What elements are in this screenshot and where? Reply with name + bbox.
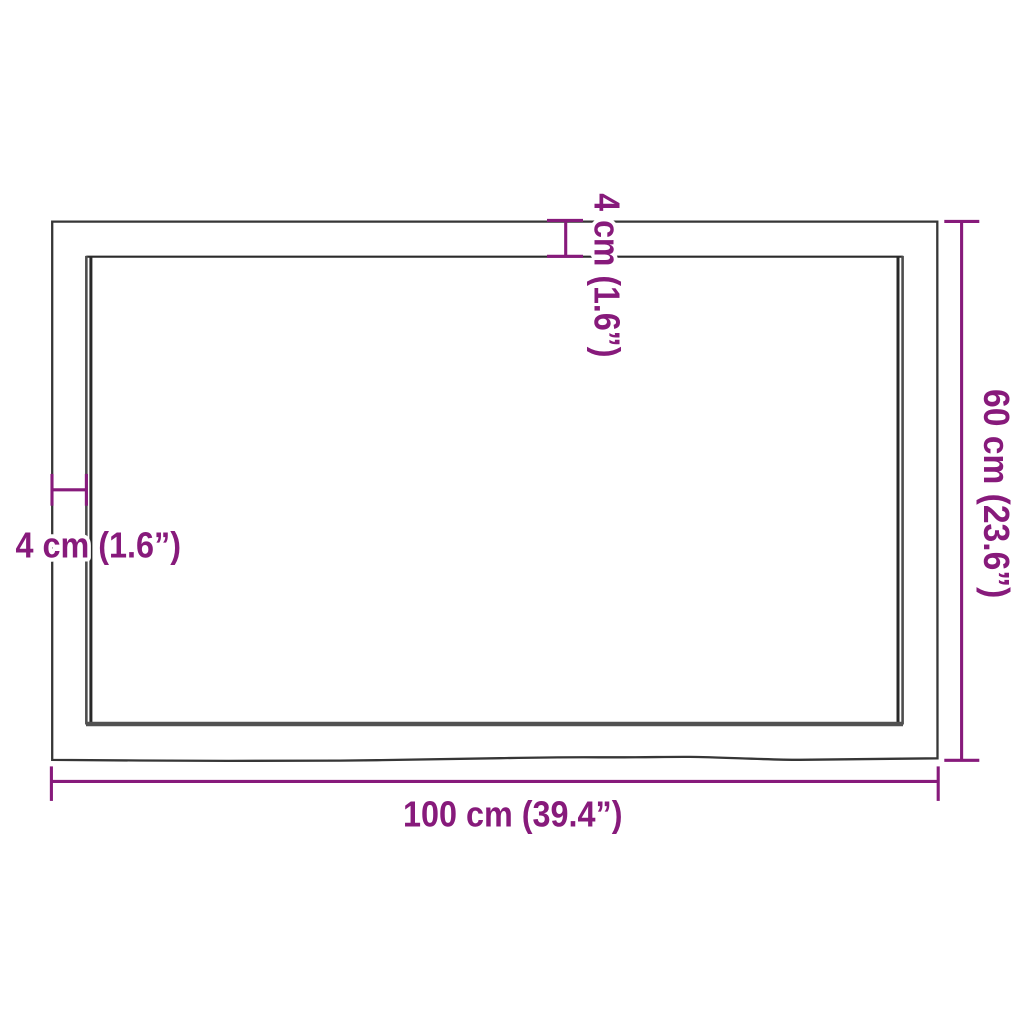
- svg-text:60 cm (23.6”): 60 cm (23.6”): [976, 389, 1017, 598]
- svg-text:100 cm (39.4”): 100 cm (39.4”): [403, 793, 623, 834]
- svg-text:4 cm (1.6”): 4 cm (1.6”): [586, 193, 627, 357]
- svg-text:4 cm (1.6”): 4 cm (1.6”): [16, 525, 182, 566]
